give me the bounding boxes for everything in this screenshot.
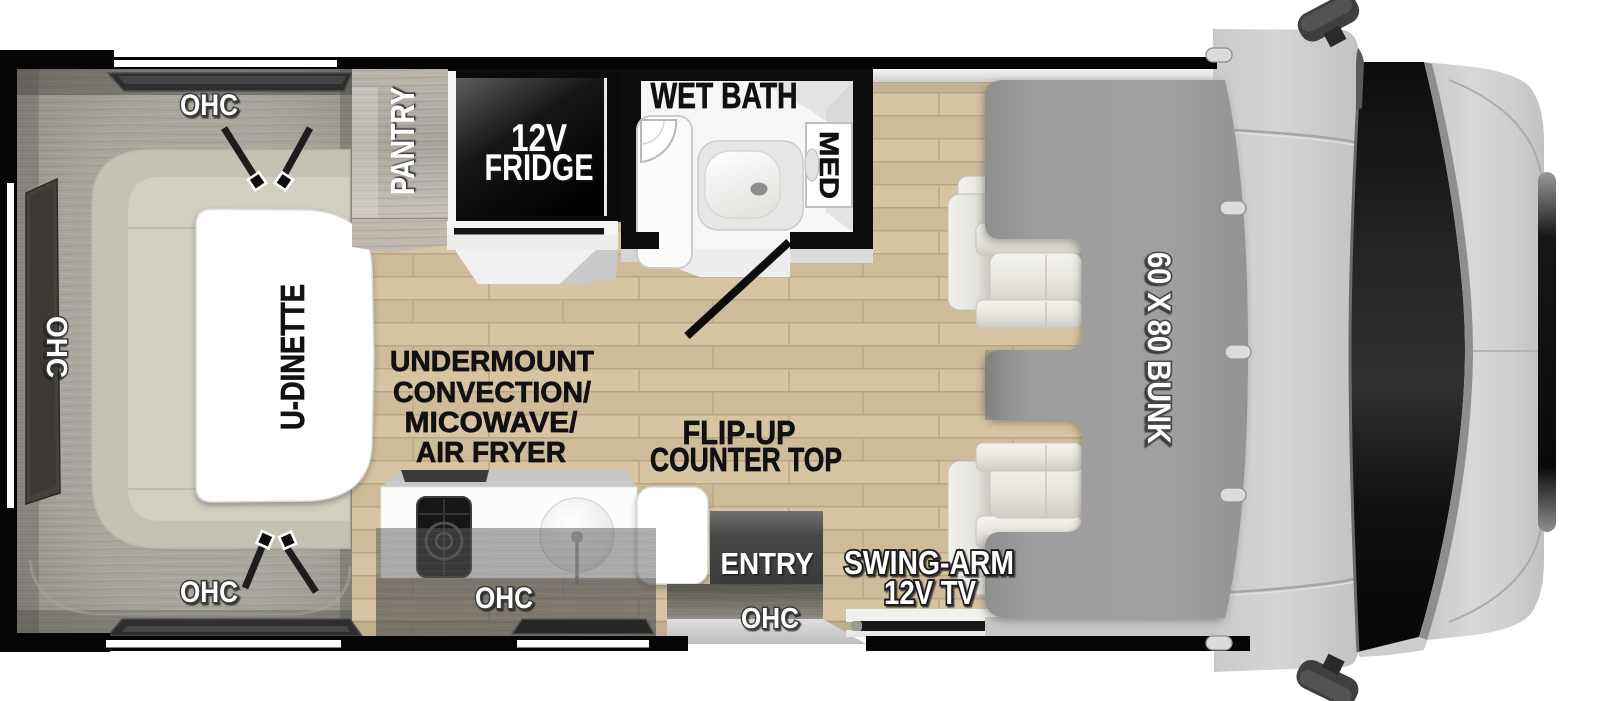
svg-text:12V TV: 12V TV <box>884 574 976 611</box>
svg-text:ENTRY: ENTRY <box>721 546 814 581</box>
svg-text:UNDERMOUNT: UNDERMOUNT <box>390 346 594 378</box>
svg-text:COUNTER TOP: COUNTER TOP <box>650 441 842 478</box>
svg-text:OHC: OHC <box>741 603 799 635</box>
svg-text:OHC: OHC <box>180 576 238 609</box>
svg-text:PANTRY: PANTRY <box>384 87 421 195</box>
svg-text:FRIDGE: FRIDGE <box>485 147 594 188</box>
svg-text:OHC: OHC <box>40 316 72 378</box>
svg-text:OHC: OHC <box>475 582 533 615</box>
svg-text:MED: MED <box>814 131 844 199</box>
svg-text:U-DINETTE: U-DINETTE <box>274 284 311 430</box>
svg-text:AIR FRYER: AIR FRYER <box>416 437 566 469</box>
svg-text:CONVECTION/: CONVECTION/ <box>393 377 591 409</box>
svg-text:OHC: OHC <box>180 89 238 122</box>
svg-text:60 X 80 BUNK: 60 X 80 BUNK <box>1141 252 1177 444</box>
svg-text:MICOWAVE/: MICOWAVE/ <box>405 407 578 439</box>
svg-text:WET BATH: WET BATH <box>651 75 798 116</box>
